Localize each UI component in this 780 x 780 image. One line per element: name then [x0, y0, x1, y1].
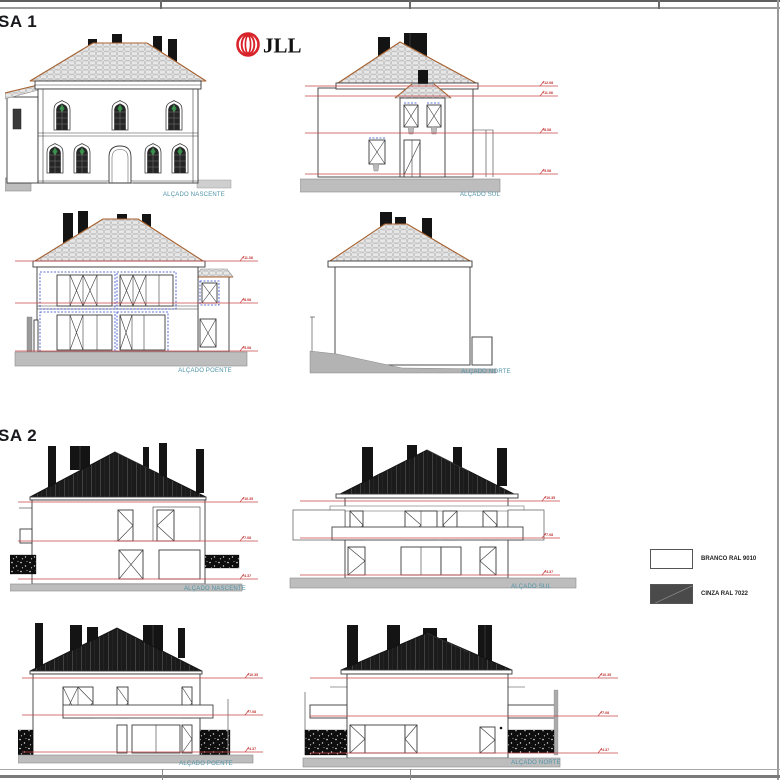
frame-divider [160, 0, 162, 9]
svg-text:+4.37: +4.37 [544, 570, 553, 574]
roof [33, 219, 205, 267]
svg-text:+10.35: +10.35 [544, 496, 555, 500]
casa2-sul-drawing: +10.35 +7.08 +4.37 [288, 443, 578, 600]
facade-wall [318, 88, 473, 177]
svg-text:+11.08: +11.08 [242, 256, 253, 260]
legend-swatch-cinza [650, 584, 693, 604]
frame-divider [658, 0, 660, 9]
casa2-poente-drawing: +10.35 +7.08 +4.37 [18, 620, 273, 775]
balcony-slab [63, 705, 213, 718]
jll-logo: JLL [236, 31, 302, 63]
ground [300, 179, 500, 192]
casa1-norte-drawing [302, 211, 517, 384]
svg-text:+7.08: +7.08 [242, 536, 251, 540]
svg-text:+4.37: +4.37 [242, 574, 251, 578]
svg-text:+11.08: +11.08 [542, 91, 553, 95]
svg-text:+10.35: +10.35 [600, 673, 611, 677]
casa1-poente-label: ALÇADO POENTE [150, 368, 260, 374]
title-block-bottom-edge [0, 775, 780, 778]
frame-right-border [777, 0, 779, 780]
svg-text:+5.08: +5.08 [542, 169, 551, 173]
roof [30, 43, 206, 89]
roof [30, 452, 206, 500]
casa2-poente-label: ALÇADO POENTE [151, 761, 261, 767]
legend-row-branco: BRANCO RAL 9010 [650, 549, 756, 569]
legend-swatch-branco [650, 549, 693, 569]
retaining-wall [473, 130, 493, 177]
windows-lower [119, 550, 200, 579]
jll-logo-icon: JLL [236, 31, 302, 58]
title-block-top-edge [0, 0, 780, 9]
casa2-nascente-label: ALÇADO NASCENTE [160, 586, 270, 592]
svg-text:+7.08: +7.08 [247, 710, 256, 714]
frame-divider [409, 0, 411, 9]
drawing-sheet: SA 1 SA 2 JLL [0, 0, 780, 780]
roof [30, 628, 202, 674]
casa2-sul-label: ALÇADO SUL [476, 584, 586, 590]
casa1-title: SA 1 [0, 12, 37, 32]
ground [15, 352, 247, 366]
jll-logo-text: JLL [263, 34, 302, 58]
roof [328, 224, 472, 267]
casa1-nascente-label: ALÇADO NASCENTE [139, 192, 249, 198]
svg-text:+7.08: +7.08 [544, 533, 553, 537]
blank-wall [335, 267, 470, 365]
svg-text:+7.08: +7.08 [600, 711, 609, 715]
casa1-sul-label: ALÇADO SUL [425, 192, 535, 198]
casa1-poente-drawing: +11.08 +8.08 +5.08 [13, 211, 263, 384]
svg-text:+4.37: +4.37 [600, 748, 609, 752]
svg-text:+10.35: +10.35 [242, 497, 253, 501]
casa2-norte-drawing: +10.35 +7.08 +4.37 [298, 620, 628, 775]
roof [336, 42, 478, 89]
legend-row-cinza: CINZA RAL 7022 [650, 584, 756, 604]
entrance-door [107, 146, 133, 183]
svg-text:+10.35: +10.35 [247, 673, 258, 677]
svg-text:+12.08: +12.08 [542, 81, 553, 85]
svg-text:+8.08: +8.08 [542, 128, 551, 132]
material-legend: BRANCO RAL 9010 CINZA RAL 7022 [650, 549, 756, 604]
casa1-norte-label: ALÇADO NORTE [431, 369, 541, 375]
legend-label-cinza: CINZA RAL 7022 [701, 591, 748, 597]
door [404, 140, 420, 177]
casa2-norte-label: ALÇADO NORTE [481, 760, 591, 766]
casa1-nascente-drawing [5, 33, 233, 208]
legend-label-branco: BRANCO RAL 9010 [701, 556, 756, 562]
casa1-sul-drawing: +12.08 +11.08 +8.08 +5.08 [300, 33, 565, 208]
svg-text:+8.08: +8.08 [242, 298, 251, 302]
windows-upper [40, 272, 176, 309]
casa2-nascente-drawing: +10.35 +7.08 +4.37 [10, 443, 270, 600]
annex [5, 85, 38, 183]
svg-text:+5.08: +5.08 [242, 346, 251, 350]
svg-text:+4.37: +4.37 [247, 747, 256, 751]
left-wing [19, 508, 32, 543]
